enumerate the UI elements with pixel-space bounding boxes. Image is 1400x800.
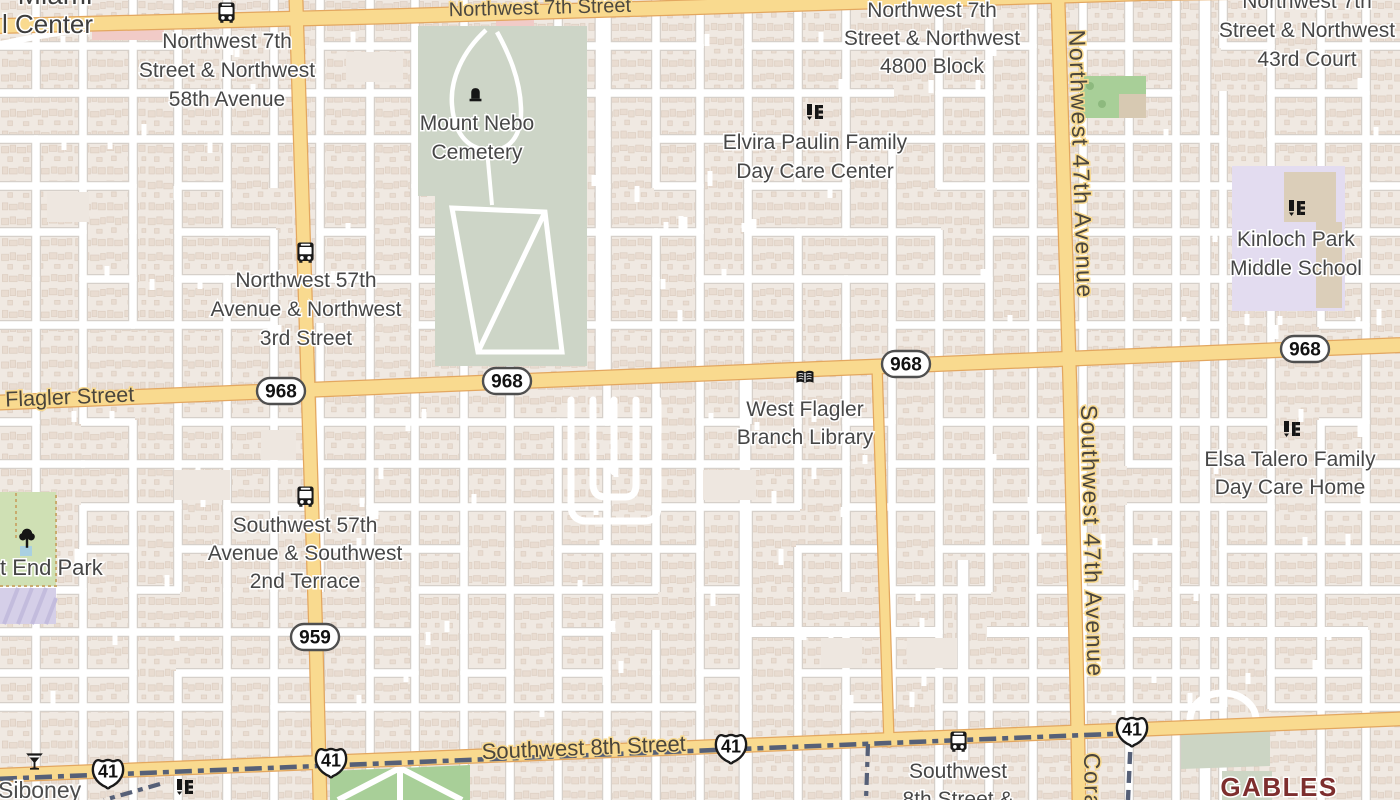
svg-text:Siboney: Siboney xyxy=(0,777,82,800)
svg-text:2nd Terrace: 2nd Terrace xyxy=(250,570,361,593)
svg-text:Street & Northwest: Street & Northwest xyxy=(139,59,315,82)
svg-text:4800 Block: 4800 Block xyxy=(880,55,984,78)
svg-text:41: 41 xyxy=(1122,720,1142,740)
svg-text:West Flagler: West Flagler xyxy=(746,398,863,421)
svg-text:3rd Street: 3rd Street xyxy=(260,327,352,350)
svg-text:Middle School: Middle School xyxy=(1230,257,1362,280)
svg-text:l Center: l Center xyxy=(2,9,93,39)
svg-text:Street & Northwest: Street & Northwest xyxy=(1219,19,1395,42)
svg-text:Branch Library: Branch Library xyxy=(737,426,874,449)
svg-text:43rd Court: 43rd Court xyxy=(1257,48,1356,71)
svg-text:8th Street &: 8th Street & xyxy=(903,788,1014,800)
svg-text:Southwest: Southwest xyxy=(909,760,1007,783)
svg-text:58th Avenue: 58th Avenue xyxy=(169,88,285,111)
svg-text:41: 41 xyxy=(98,762,118,782)
svg-text:Day Care Home: Day Care Home xyxy=(1215,476,1366,499)
svg-text:Southwest 57th: Southwest 57th xyxy=(233,514,378,537)
svg-text:Mount Nebo: Mount Nebo xyxy=(420,112,534,135)
svg-text:Cemetery: Cemetery xyxy=(431,141,523,164)
svg-text:Street & Northwest: Street & Northwest xyxy=(844,27,1020,50)
svg-text:41: 41 xyxy=(721,737,741,757)
svg-text:Day Care Center: Day Care Center xyxy=(736,160,894,183)
svg-text:Kinloch Park: Kinloch Park xyxy=(1237,228,1355,251)
svg-text:Coral Way: Coral Way xyxy=(1079,753,1107,800)
svg-text:Avenue & Northwest: Avenue & Northwest xyxy=(210,298,401,321)
svg-text:Avenue & Southwest: Avenue & Southwest xyxy=(208,542,403,565)
svg-text:959: 959 xyxy=(299,628,331,649)
svg-text:Elvira Paulin Family: Elvira Paulin Family xyxy=(723,131,908,154)
svg-text:Northwest 7th: Northwest 7th xyxy=(867,0,997,22)
svg-text:Northwest 7th: Northwest 7th xyxy=(162,30,292,53)
svg-text:Northwest 7th: Northwest 7th xyxy=(1242,0,1372,13)
svg-text:968: 968 xyxy=(890,355,922,376)
svg-text:968: 968 xyxy=(1289,340,1321,361)
svg-text:41: 41 xyxy=(321,751,341,771)
svg-text:968: 968 xyxy=(491,372,523,393)
svg-text:968: 968 xyxy=(265,382,297,403)
svg-text:Northwest 57th: Northwest 57th xyxy=(235,269,376,292)
svg-text:t End Park: t End Park xyxy=(0,555,104,580)
svg-text:GABLES: GABLES xyxy=(1220,772,1337,800)
svg-text:Elsa Talero Family: Elsa Talero Family xyxy=(1204,448,1376,471)
